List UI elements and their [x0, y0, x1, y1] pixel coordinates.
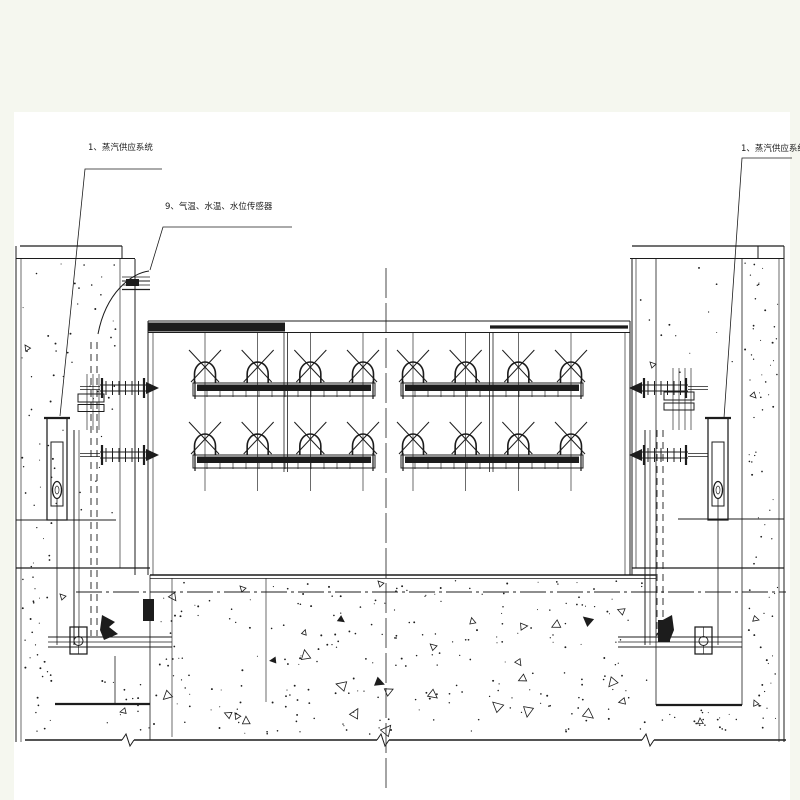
drawing-page: 1、蒸汽供应系统 9、气温、水温、水位传感器 1、蒸汽供应系统 — [0, 0, 800, 800]
gate-top-rail — [148, 323, 285, 332]
gate-heating-section-drawing: 1、蒸汽供应系统 9、气温、水温、水位传感器 1、蒸汽供应系统 — [0, 0, 800, 800]
label-steam-supply-left: 1、蒸汽供应系统 — [88, 142, 153, 153]
label-steam-supply-right: 1、蒸汽供应系统 — [741, 143, 800, 154]
label-sensors: 9、气温、水温、水位传感器 — [165, 201, 273, 212]
